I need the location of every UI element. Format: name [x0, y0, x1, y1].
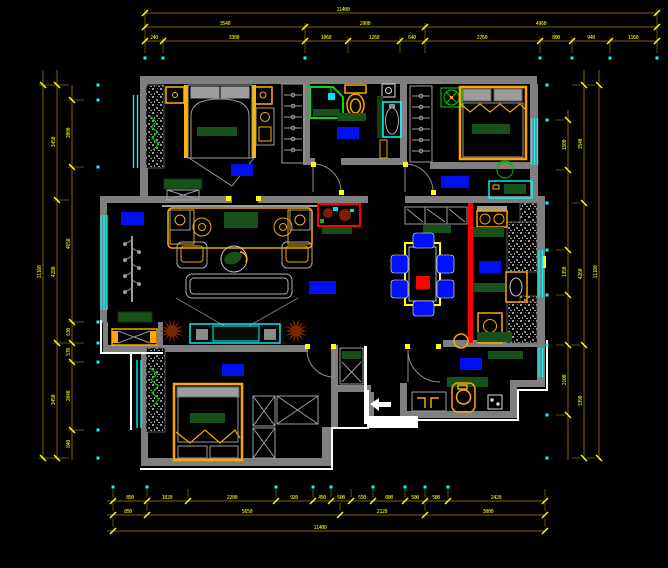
plant-icon [160, 319, 185, 343]
wall-bath-south-b [341, 158, 407, 165]
chair [413, 233, 434, 248]
hall-display-cabinet [318, 204, 360, 234]
door-bathroom [313, 164, 341, 192]
dim-label: 840 [66, 440, 72, 448]
tv-cabinet [190, 324, 280, 343]
dim-label: 4650 [66, 238, 72, 249]
chair [437, 255, 454, 273]
dim-label: 2200 [227, 495, 238, 501]
dim-label: 2000 [66, 127, 72, 138]
dim-label: 3450 [51, 394, 57, 405]
dim-ext-dot [144, 57, 147, 60]
wardrobe-bedroom1 [282, 84, 304, 163]
tv [213, 326, 259, 341]
dim-row-right-2: 354042603390 [572, 70, 587, 461]
sideboard-front [423, 225, 451, 233]
dim-label: 11400 [313, 525, 326, 531]
dim-label: 1160 [628, 35, 639, 41]
dim-ext-dot [275, 486, 278, 489]
window-sill-planter [118, 312, 152, 322]
wall-entry-step-h [510, 380, 545, 387]
dim-label: 3000 [483, 509, 494, 515]
bedroom-1 [150, 84, 304, 200]
bedroom-2-label [441, 176, 469, 188]
dim-label: 3450 [51, 136, 57, 147]
dim-label: 4260 [578, 268, 584, 279]
door-hinge [431, 190, 436, 195]
wardrobe-bedroom3 [253, 396, 318, 458]
chair [413, 301, 434, 316]
dining-room [391, 207, 467, 316]
dim-row-left-3: 200046506305702040840 [66, 85, 84, 460]
side-table-left [170, 210, 190, 230]
dim-label: 640 [408, 35, 416, 41]
door-hinge [436, 344, 441, 349]
chair [391, 280, 408, 298]
walls [100, 76, 545, 466]
toilet [345, 85, 366, 116]
dim-ext-dot [539, 57, 542, 60]
dresser [256, 108, 274, 145]
door-bedroom3 [307, 350, 334, 377]
dim-label: 800 [385, 495, 393, 501]
dim-label: 500 [337, 495, 345, 501]
dim-ext-dot [424, 486, 427, 489]
shower-head [328, 93, 335, 100]
dim-ext-dot [97, 361, 100, 364]
dim-label: 2120 [377, 509, 388, 515]
closet-bedroom2 [410, 86, 432, 162]
dim-ext-dot [546, 119, 549, 122]
dim-ext-dot [330, 486, 333, 489]
hallway-label [309, 281, 336, 294]
table-runner [416, 276, 430, 289]
dim-label: 11400 [336, 7, 349, 13]
armchair-right [282, 242, 312, 268]
window-bedroom3-left [137, 360, 141, 428]
entry-label [460, 358, 482, 370]
shoe-shelf [488, 351, 523, 359]
bathroom-label [337, 127, 359, 139]
dim-label: 11160 [37, 265, 43, 278]
door-entry [408, 350, 440, 382]
dim-ext-dot [304, 57, 307, 60]
dim-ext-dot [112, 486, 115, 489]
sofa-cushion [224, 212, 258, 228]
dim-ext-dot [571, 57, 574, 60]
plant-table [221, 246, 247, 272]
dim-label: 2760 [477, 35, 488, 41]
dim-label: 800 [552, 35, 560, 41]
dim-label: 11160 [593, 265, 599, 278]
white-strip-corridor [364, 346, 367, 424]
dim-ext-dot [97, 84, 100, 87]
kitchen-pass-shelf [477, 332, 512, 342]
hatch-bedroom3 [146, 348, 165, 432]
dim-row-bottom-3: 11400 [107, 519, 548, 534]
entry-counter [412, 392, 446, 411]
wall-top [140, 76, 537, 84]
bed3-blanket [190, 413, 225, 423]
door-hinge [331, 344, 336, 349]
living-room-label [121, 212, 144, 225]
nightstand-right-lamp [260, 92, 266, 98]
dim-label: 850 [124, 509, 132, 515]
kitchen-window-mark [543, 256, 546, 268]
bedroom-3-label [222, 364, 244, 376]
counter-top-b [473, 283, 505, 292]
stove [477, 206, 507, 227]
bed1-blanket [197, 127, 237, 136]
armchair-left [177, 242, 207, 268]
dim-ext-dot [447, 486, 450, 489]
dim-label: 850 [126, 495, 134, 501]
dim-ext-dot [404, 486, 407, 489]
dim-label: 580 [432, 495, 440, 501]
sideboard [405, 207, 467, 224]
dim-row-top-2: 354029004960 [142, 21, 660, 39]
bath-shelf [337, 113, 366, 121]
dim-label: 1020 [162, 495, 173, 501]
dim-label: 3300 [229, 35, 240, 41]
counter-top-a [473, 227, 504, 237]
dim-label: 4280 [51, 266, 57, 277]
dim-label: 2040 [66, 390, 72, 401]
door-hinge [256, 196, 261, 201]
nightstand-left [166, 87, 184, 103]
bedroom-3 [150, 368, 318, 460]
dim-label: 630 [66, 328, 72, 336]
bathroom [310, 84, 401, 158]
dim-label: 550 [358, 495, 366, 501]
dining-table [405, 243, 440, 305]
living-room [112, 206, 318, 345]
dim-label: 3540 [220, 21, 231, 27]
dim-ext-dot [312, 486, 315, 489]
dim-label: 240 [150, 35, 158, 41]
dim-ext-dot [546, 414, 549, 417]
wall-step-left [100, 196, 148, 203]
dim-label: 2100 [562, 374, 568, 385]
dim-ext-dot [146, 486, 149, 489]
floorplan-drawing: 1140035402900496024033001060126064027608… [0, 0, 668, 568]
bed2-blanket [472, 124, 510, 134]
plant-icon [284, 319, 309, 343]
chair [391, 255, 408, 273]
door-hinge [311, 162, 316, 167]
wall-bed2-south [430, 162, 537, 169]
nightstand-right [254, 87, 272, 104]
wall-hall-e2 [258, 196, 368, 203]
dim-label: 2900 [360, 21, 371, 27]
dim-label: 2420 [491, 495, 502, 501]
door-hinge [403, 162, 408, 167]
dim-ext-dot [372, 486, 375, 489]
dim-label: 3540 [578, 138, 584, 149]
wall-hall-e3 [405, 196, 537, 203]
hatch-bedroom1 [146, 85, 164, 168]
bath-cabinet [380, 140, 387, 158]
dining-chairs [391, 233, 454, 316]
dim-row-right-1: 150013502100 [556, 110, 571, 460]
water-heater [382, 84, 395, 97]
desk [489, 181, 532, 198]
dim-ext-dot [656, 57, 659, 60]
washbasin [383, 102, 401, 137]
dim-ext-dot [546, 249, 549, 252]
door-hinge [305, 344, 310, 349]
door-hinge [339, 190, 344, 195]
entry-cabinet [340, 348, 363, 384]
door-hinge [405, 344, 410, 349]
dim-row-bottom-1: 850102022009204505005508005005802420 [107, 489, 548, 504]
dim-label: 450 [318, 495, 326, 501]
door-bedroom2 [405, 164, 433, 192]
dim-label: 4960 [536, 21, 547, 27]
dim-label: 1060 [321, 35, 332, 41]
dim-ext-dot [97, 342, 100, 345]
nightstand-left-knob [173, 93, 178, 98]
side-table-right [290, 210, 310, 230]
kitchen-label [479, 261, 501, 273]
dim-ext-dot [162, 57, 165, 60]
balcony-nook [112, 329, 157, 345]
cad-floorplan-canvas: 1140035402900496024033001060126064027608… [0, 0, 668, 568]
dim-label: 1500 [562, 139, 568, 150]
dim-row-top-3: 24033001060126064027608009401160 [142, 35, 660, 53]
dim-label: 500 [411, 495, 419, 501]
dim-ext-dot [609, 57, 612, 60]
dim-ext-dot [546, 344, 549, 347]
dim-ext-dot [97, 321, 100, 324]
dim-ext-dot [97, 99, 100, 102]
dim-label: 1350 [562, 266, 568, 277]
coffee-table [186, 274, 292, 298]
dim-label: 1260 [369, 35, 380, 41]
dim-row-bottom-2: 850565021203000 [107, 503, 548, 518]
bedroom-1-label [231, 164, 253, 176]
bath-column [377, 96, 383, 138]
chair [437, 280, 454, 298]
hall-shelf [322, 227, 352, 234]
dim-label: 920 [290, 495, 298, 501]
door-hinge [226, 196, 231, 201]
hatch-kitchen-counter-a [507, 222, 537, 272]
dim-ext-dot [546, 84, 549, 87]
dim-ext-dot [546, 202, 549, 205]
dimension-annotations: 1140035402900496024033001060126064027608… [37, 7, 660, 534]
bedroom-2 [410, 86, 532, 198]
wall-kitchen-right [537, 196, 545, 345]
dim-label: 940 [587, 35, 595, 41]
dim-ext-dot [97, 166, 100, 169]
wall-entry-left [400, 383, 407, 418]
coat-rack [124, 236, 141, 302]
entrance-text-block [368, 416, 418, 428]
dim-ext-dot [97, 429, 100, 432]
dim-label: 3390 [578, 395, 584, 406]
dim-ext-dot [546, 294, 549, 297]
dim-ext-dot [546, 457, 549, 460]
washing-machine [452, 383, 475, 412]
dim-label: 570 [66, 348, 72, 356]
kitchen-sliding-door [468, 203, 473, 343]
dim-ext-dot [97, 457, 100, 460]
dim-label: 5650 [242, 509, 253, 515]
bed-double-2 [460, 87, 526, 159]
wall-living-south [107, 345, 308, 352]
bed-double-3 [174, 384, 242, 460]
small-appliance [488, 395, 502, 409]
dim-row-right-3: 11160 [587, 70, 602, 461]
window-bedroom1-left [134, 95, 138, 168]
shower-bench [313, 109, 340, 116]
